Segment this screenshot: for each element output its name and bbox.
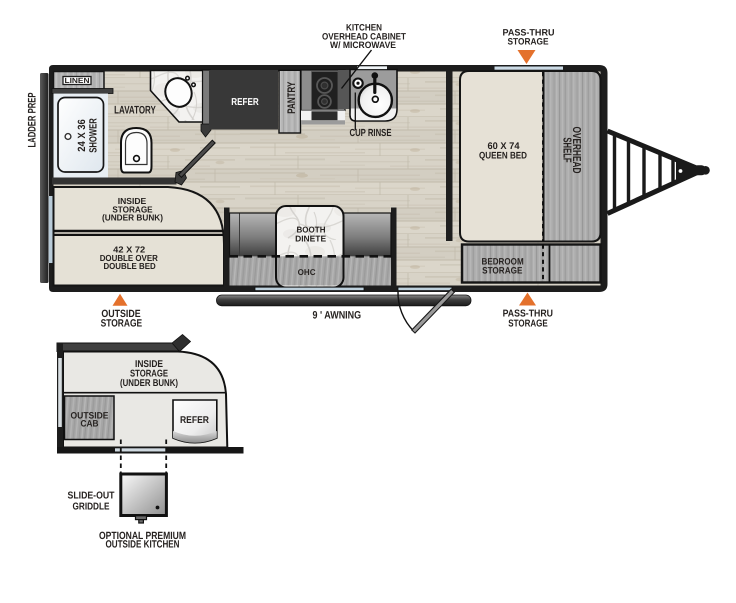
svg-text:DINETE: DINETE xyxy=(295,234,326,244)
svg-text:SHELF: SHELF xyxy=(561,137,573,162)
svg-text:PANTRY: PANTRY xyxy=(286,81,298,113)
svg-text:(UNDER BUNK): (UNDER BUNK) xyxy=(102,213,163,223)
svg-text:CAB: CAB xyxy=(81,419,99,429)
svg-text:REFER: REFER xyxy=(180,415,209,426)
svg-text:REFER: REFER xyxy=(231,97,259,108)
svg-text:STORAGE: STORAGE xyxy=(508,318,548,329)
svg-text:W/ MICROWAVE: W/ MICROWAVE xyxy=(330,40,396,50)
svg-text:GRIDDLE: GRIDDLE xyxy=(73,502,110,513)
svg-text:DOUBLE BED: DOUBLE BED xyxy=(103,261,155,271)
svg-text:SHOWER: SHOWER xyxy=(88,118,100,153)
svg-text:LINEN: LINEN xyxy=(65,76,90,85)
svg-text:STORAGE: STORAGE xyxy=(508,36,549,46)
svg-text:OHC: OHC xyxy=(298,267,316,277)
svg-text:QUEEN BED: QUEEN BED xyxy=(479,150,527,161)
svg-text:STORAGE: STORAGE xyxy=(482,266,522,276)
svg-text:SLIDE-OUT: SLIDE-OUT xyxy=(68,491,115,502)
svg-text:LADDER PREP: LADDER PREP xyxy=(27,93,39,148)
svg-text:24 X 36: 24 X 36 xyxy=(76,119,88,152)
svg-text:CUP RINSE: CUP RINSE xyxy=(350,128,392,139)
svg-text:9 ' AWNING: 9 ' AWNING xyxy=(313,310,362,322)
svg-text:STORAGE: STORAGE xyxy=(101,317,143,329)
svg-text:OUTSIDE KITCHEN: OUTSIDE KITCHEN xyxy=(106,539,180,551)
svg-text:LAVATORY: LAVATORY xyxy=(114,105,156,117)
svg-text:(UNDER BUNK): (UNDER BUNK) xyxy=(120,378,178,389)
